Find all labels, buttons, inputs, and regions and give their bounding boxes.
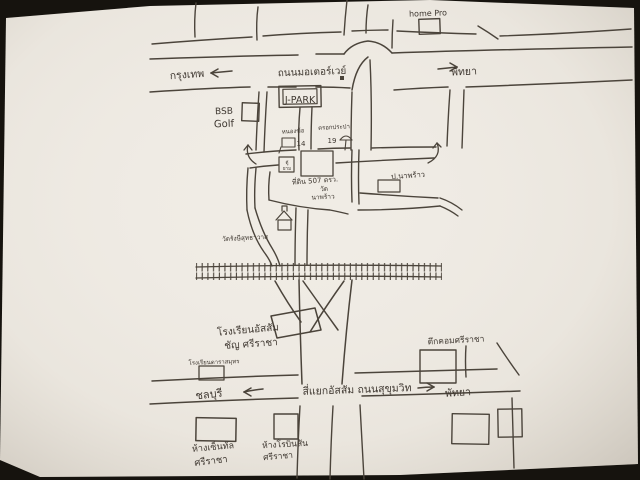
pattaya-top-direction-label: พัทยา bbox=[451, 65, 477, 78]
map-sketch: home Pro กรุงเทพ ถนนมอเตอร์เวย์ พัทยา BS… bbox=[0, 0, 640, 480]
road-label-mark bbox=[340, 76, 344, 80]
jpark-label: J-PARK bbox=[284, 95, 316, 106]
soi-right-number-label: 19 bbox=[328, 137, 337, 145]
golf-label-line2: Golf bbox=[214, 119, 235, 131]
land-owner-label-line2: นาพร้าว bbox=[311, 192, 335, 201]
railway-line bbox=[196, 263, 442, 280]
top-road-name-label: ถนนมอเตอร์เวย์ bbox=[278, 65, 347, 79]
bangkok-direction-label: กรุงเทพ bbox=[169, 68, 204, 82]
photo-of-hand-drawn-map: home Pro กรุงเทพ ถนนมอเตอร์เวย์ พัทยา BS… bbox=[0, 0, 640, 480]
guard-box-label-line2: ยาม bbox=[283, 167, 291, 172]
guard-box-label-line1: ตู้ bbox=[286, 160, 289, 166]
soi-left-number-label: 14 bbox=[297, 140, 306, 148]
pattaya-bottom-direction-label: พัทยา bbox=[445, 386, 472, 400]
golf-label-line1: BSB bbox=[215, 107, 233, 118]
home-pro-label: home Pro bbox=[409, 8, 447, 18]
jpark-sign: J-PARK bbox=[279, 86, 321, 108]
